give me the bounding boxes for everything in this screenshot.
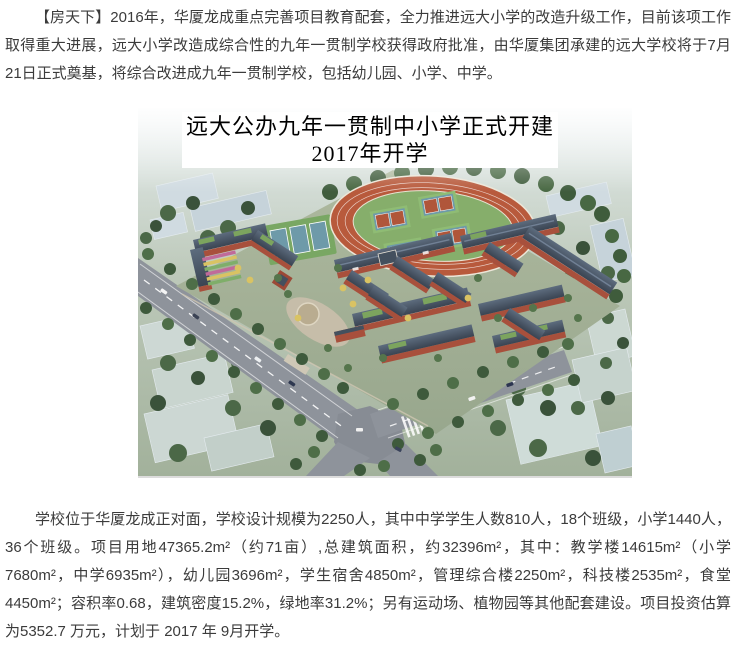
- image-title-overlay: 远大公办九年一贯制中小学正式开建 2017年开学: [182, 112, 558, 168]
- school-rendering-image: 远大公办九年一贯制中小学正式开建 2017年开学: [138, 108, 632, 478]
- article-page: 【房天下】2016年，华厦龙成重点完善项目教育配套，全力推进远大小学的改造升级工…: [0, 0, 736, 646]
- image-title-line2: 2017年开学: [311, 140, 428, 167]
- image-title-line1: 远大公办九年一贯制中小学正式开建: [186, 113, 554, 140]
- intro-paragraph: 【房天下】2016年，华厦龙成重点完善项目教育配套，全力推进远大小学的改造升级工…: [5, 4, 731, 88]
- details-paragraph: 学校位于华厦龙成正对面，学校设计规模为2250人，其中中学学生人数810人，18…: [5, 506, 731, 646]
